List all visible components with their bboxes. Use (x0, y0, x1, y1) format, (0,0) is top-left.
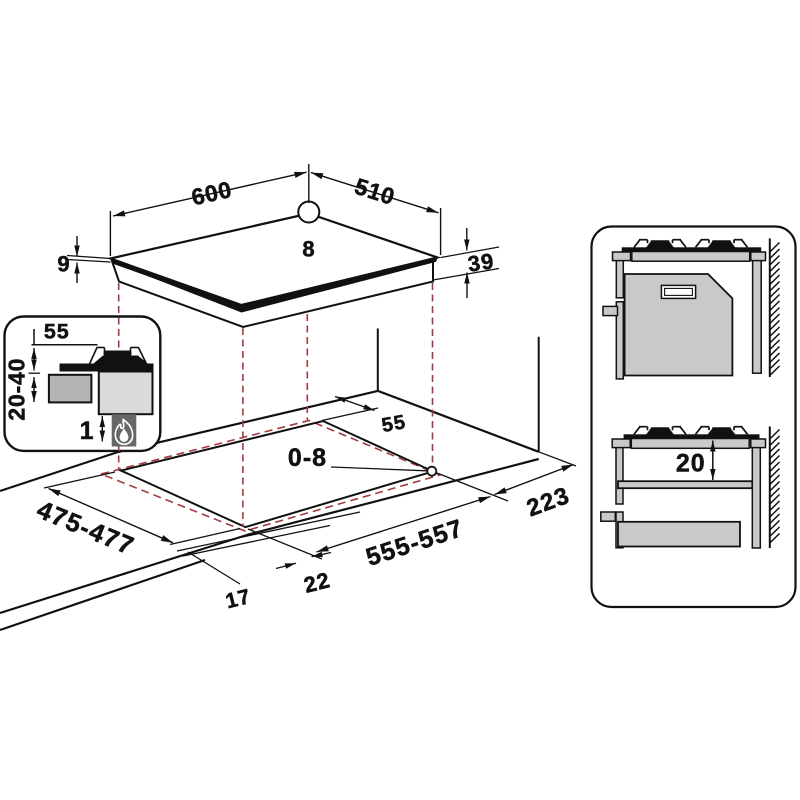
svg-text:20-40: 20-40 (4, 358, 30, 421)
svg-text:1: 1 (80, 417, 94, 445)
svg-text:20: 20 (676, 450, 706, 478)
svg-text:0-8: 0-8 (288, 444, 327, 472)
svg-text:55: 55 (44, 320, 70, 344)
svg-text:55: 55 (380, 411, 408, 437)
svg-text:39: 39 (466, 248, 496, 276)
svg-text:9: 9 (57, 252, 69, 277)
svg-text:8: 8 (302, 237, 314, 262)
